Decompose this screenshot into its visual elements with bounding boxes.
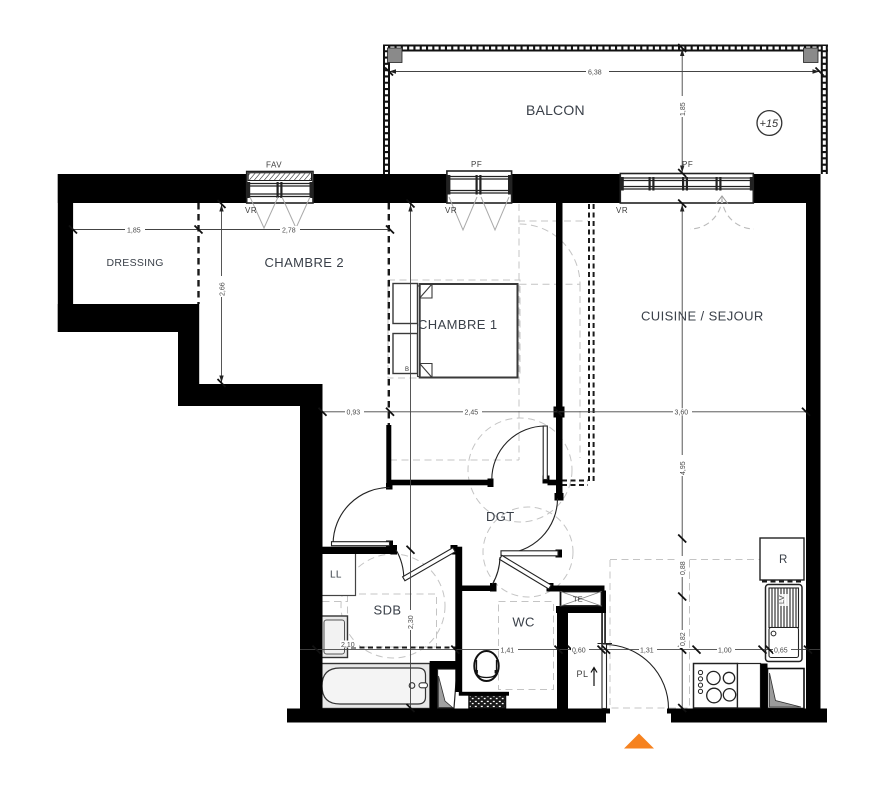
svg-text:LV: LV bbox=[777, 595, 786, 604]
svg-text:VR: VR bbox=[616, 206, 628, 215]
svg-text:R: R bbox=[779, 554, 788, 566]
svg-text:B: B bbox=[405, 367, 409, 373]
svg-text:1,85: 1,85 bbox=[680, 102, 687, 116]
svg-text:0,88: 0,88 bbox=[680, 561, 687, 575]
svg-text:FAV: FAV bbox=[266, 161, 282, 170]
svg-text:2,30: 2,30 bbox=[408, 615, 415, 629]
svg-text:BALCON: BALCON bbox=[526, 102, 585, 118]
svg-text:PF: PF bbox=[471, 160, 482, 169]
svg-text:3,60: 3,60 bbox=[675, 410, 689, 417]
svg-text:2,45: 2,45 bbox=[465, 410, 479, 417]
svg-text:1,31: 1,31 bbox=[640, 648, 654, 655]
svg-text:1,85: 1,85 bbox=[127, 227, 141, 234]
svg-text:+15: +15 bbox=[760, 118, 780, 130]
svg-text:CHAMBRE 2: CHAMBRE 2 bbox=[265, 255, 344, 270]
svg-text:0,82: 0,82 bbox=[680, 632, 687, 646]
svg-text:CUISINE / SEJOUR: CUISINE / SEJOUR bbox=[641, 309, 764, 324]
svg-text:0,93: 0,93 bbox=[347, 410, 361, 417]
svg-text:PL: PL bbox=[577, 669, 589, 679]
svg-text:TE: TE bbox=[573, 595, 583, 604]
svg-text:WC: WC bbox=[512, 615, 534, 630]
svg-text:LL: LL bbox=[330, 570, 342, 581]
svg-text:SDB: SDB bbox=[374, 603, 402, 618]
svg-text:PF: PF bbox=[682, 160, 693, 169]
svg-text:2,78: 2,78 bbox=[282, 227, 296, 234]
svg-text:0,60: 0,60 bbox=[572, 648, 586, 655]
svg-text:VR: VR bbox=[445, 206, 457, 215]
svg-text:1,41: 1,41 bbox=[501, 648, 515, 655]
svg-text:2,66: 2,66 bbox=[220, 282, 227, 296]
svg-text:1,00: 1,00 bbox=[718, 648, 732, 655]
svg-text:0,65: 0,65 bbox=[774, 648, 788, 655]
svg-text:DRESSING: DRESSING bbox=[107, 257, 164, 269]
svg-text:4,95: 4,95 bbox=[680, 461, 687, 475]
svg-text:2,10: 2,10 bbox=[341, 642, 355, 649]
svg-text:6,38: 6,38 bbox=[588, 69, 602, 76]
svg-text:DGT: DGT bbox=[486, 509, 515, 524]
svg-text:VR: VR bbox=[245, 206, 257, 215]
svg-text:CHAMBRE 1: CHAMBRE 1 bbox=[418, 317, 497, 332]
